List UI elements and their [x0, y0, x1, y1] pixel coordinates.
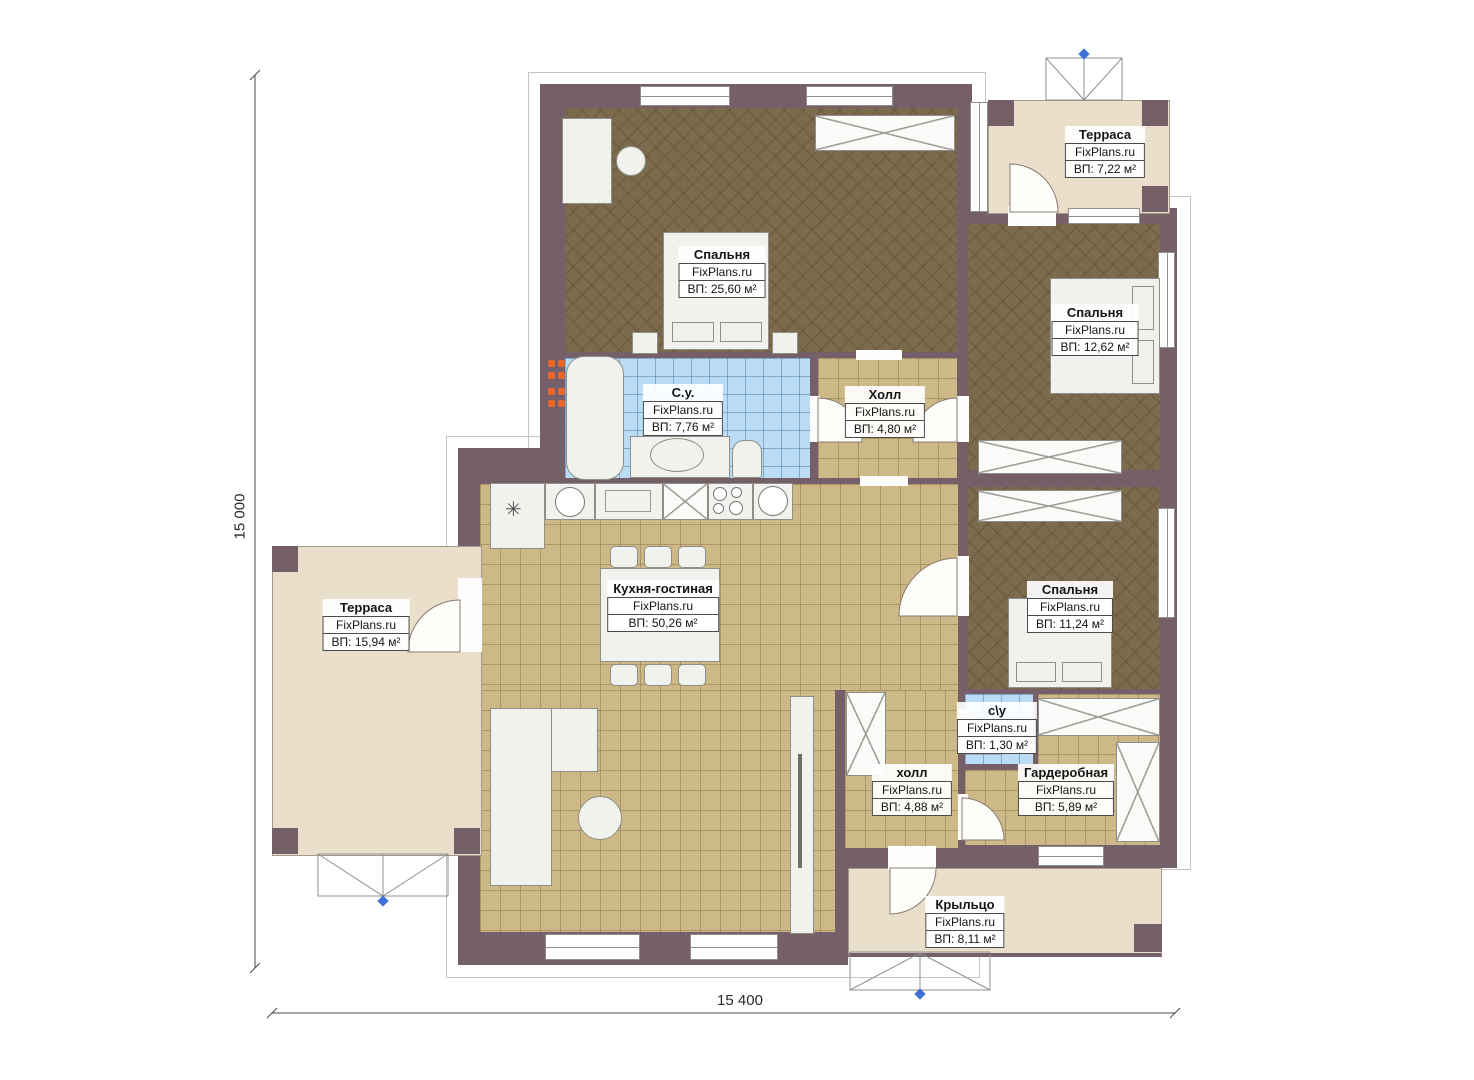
stairs-direction-markers — [377, 48, 1089, 999]
room-area: ВП: 5,89 м² — [1019, 799, 1113, 815]
room-area: ВП: 8,11 м² — [926, 931, 1003, 947]
brand-watermark: FixPlans.ru — [1019, 782, 1113, 799]
room-name: Спальня — [1052, 304, 1139, 321]
room-name: Терраса — [323, 599, 410, 616]
room-name: С.у. — [643, 384, 723, 401]
room-label-hall-top: Холл FixPlans.ru ВП: 4,80 м² — [845, 386, 925, 438]
room-label-terrace-left: Терраса FixPlans.ru ВП: 15,94 м² — [323, 599, 410, 651]
dimension-height-label: 15 000 — [232, 482, 249, 552]
brand-watermark: FixPlans.ru — [926, 914, 1003, 931]
brand-watermark: FixPlans.ru — [958, 720, 1036, 737]
brand-watermark: FixPlans.ru — [1066, 144, 1144, 161]
room-area: ВП: 15,94 м² — [324, 634, 409, 650]
room-label-bathroom-small: с\у FixPlans.ru ВП: 1,30 м² — [957, 702, 1037, 754]
room-label-wardrobe-room: Гардеробная FixPlans.ru ВП: 5,89 м² — [1018, 764, 1114, 816]
room-name: Холл — [845, 386, 925, 403]
dimension-width-label: 15 400 — [700, 992, 780, 1009]
room-area: ВП: 50,26 м² — [608, 615, 718, 631]
brand-watermark: FixPlans.ru — [1053, 322, 1138, 339]
room-area: ВП: 7,22 м² — [1066, 161, 1144, 177]
room-area: ВП: 12,62 м² — [1053, 339, 1138, 355]
brand-watermark: FixPlans.ru — [608, 598, 718, 615]
floor-plan-canvas: ✳ — [0, 0, 1474, 1080]
room-name: Кухня-гостиная — [607, 580, 719, 597]
brand-watermark: FixPlans.ru — [680, 264, 765, 281]
room-label-bedroom-top-left: Спальня FixPlans.ru ВП: 25,60 м² — [679, 246, 766, 298]
room-name: Крыльцо — [925, 896, 1004, 913]
room-area: ВП: 4,80 м² — [846, 421, 924, 437]
brand-watermark: FixPlans.ru — [873, 782, 951, 799]
room-area: ВП: 25,60 м² — [680, 281, 765, 297]
brand-watermark: FixPlans.ru — [846, 404, 924, 421]
stairs-icons — [318, 58, 1122, 990]
room-area: ВП: 1,30 м² — [958, 737, 1036, 753]
room-label-kitchen-living: Кухня-гостиная FixPlans.ru ВП: 50,26 м² — [607, 580, 719, 632]
room-label-bathroom-main: С.у. FixPlans.ru ВП: 7,76 м² — [643, 384, 723, 436]
room-name: Спальня — [1027, 581, 1113, 598]
room-label-bedroom-top-right: Спальня FixPlans.ru ВП: 12,62 м² — [1052, 304, 1139, 356]
room-label-bedroom-right: Спальня FixPlans.ru ВП: 11,24 м² — [1027, 581, 1113, 633]
room-label-porch: Крыльцо FixPlans.ru ВП: 8,11 м² — [925, 896, 1004, 948]
room-name: с\у — [957, 702, 1037, 719]
brand-watermark: FixPlans.ru — [324, 617, 409, 634]
room-label-terrace-top: Терраса FixPlans.ru ВП: 7,22 м² — [1065, 126, 1145, 178]
room-label-hall-small: холл FixPlans.ru ВП: 4,88 м² — [872, 764, 952, 816]
room-name: Спальня — [679, 246, 766, 263]
room-area: ВП: 11,24 м² — [1028, 616, 1112, 632]
room-name: холл — [872, 764, 952, 781]
room-name: Терраса — [1065, 126, 1145, 143]
room-area: ВП: 7,76 м² — [644, 419, 722, 435]
brand-watermark: FixPlans.ru — [1028, 599, 1112, 616]
room-area: ВП: 4,88 м² — [873, 799, 951, 815]
room-name: Гардеробная — [1018, 764, 1114, 781]
brand-watermark: FixPlans.ru — [644, 402, 722, 419]
plan-linework — [0, 0, 1474, 1080]
